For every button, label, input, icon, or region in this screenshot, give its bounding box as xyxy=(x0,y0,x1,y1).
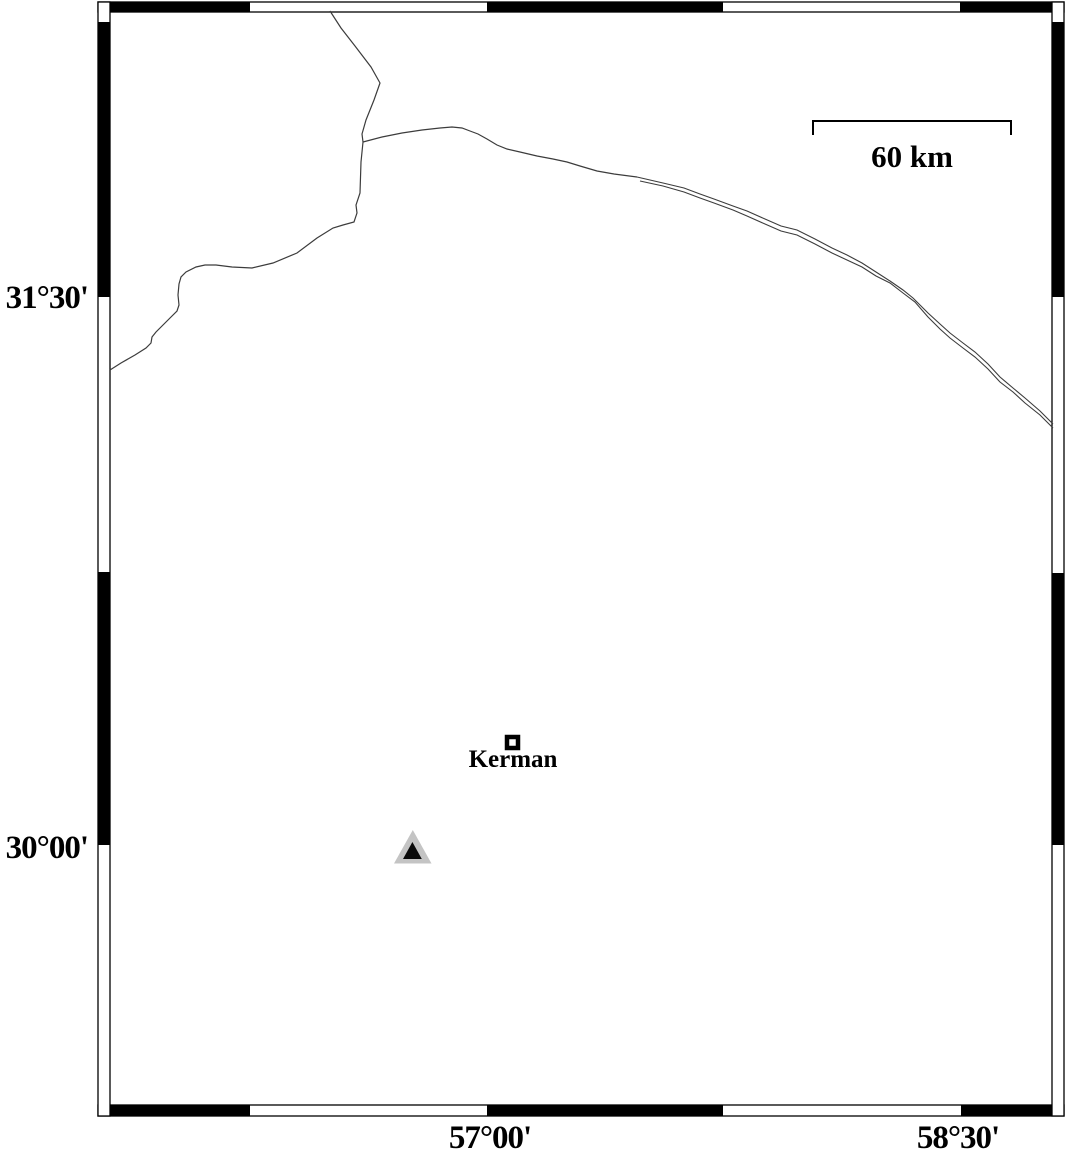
frame-segment xyxy=(1052,573,1064,845)
frame-segment xyxy=(110,2,250,12)
scale-bar-label: 60 km xyxy=(812,140,1012,174)
frame-segment xyxy=(98,572,110,845)
latitude-label-31-30: 31°30' xyxy=(0,281,88,315)
boundary-single-line xyxy=(363,127,637,177)
frame-segment xyxy=(110,1105,250,1116)
frame-segment xyxy=(1052,22,1064,297)
frame-segment xyxy=(487,1105,723,1116)
province-boundary-line xyxy=(110,11,380,370)
latitude-label-30-00: 30°00' xyxy=(0,831,88,865)
frame-segment xyxy=(487,2,723,12)
frame-segment xyxy=(960,2,1052,12)
frame-segment xyxy=(98,22,110,297)
longitude-label-57-00: 57°00' xyxy=(380,1121,600,1155)
double-boundary-upper-line xyxy=(637,177,1053,424)
map-canvas: 31°30' 30°00' 57°00' 58°30' 60 km Kerman xyxy=(0,0,1066,1154)
double-boundary-lower-line xyxy=(640,181,1053,428)
frame-segment xyxy=(961,1105,1052,1116)
longitude-label-58-30: 58°30' xyxy=(848,1121,1066,1155)
city-label-kerman: Kerman xyxy=(413,746,613,774)
scale-bar xyxy=(813,121,1011,135)
